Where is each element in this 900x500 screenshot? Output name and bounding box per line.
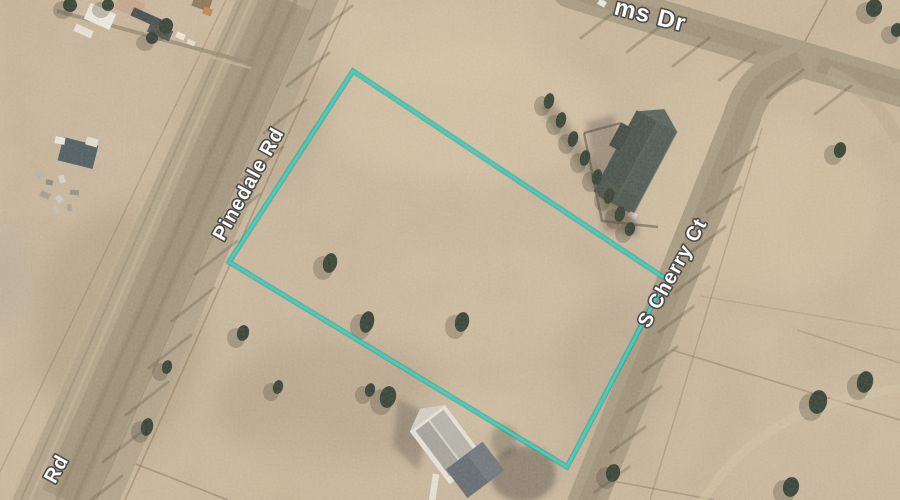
satellite-map-canvas[interactable]: Pinedale Rd S Cherry Ct ms Dr Rd — [0, 0, 900, 500]
map-svg: Pinedale Rd S Cherry Ct ms Dr Rd — [0, 0, 900, 500]
grain-light — [0, 0, 900, 500]
